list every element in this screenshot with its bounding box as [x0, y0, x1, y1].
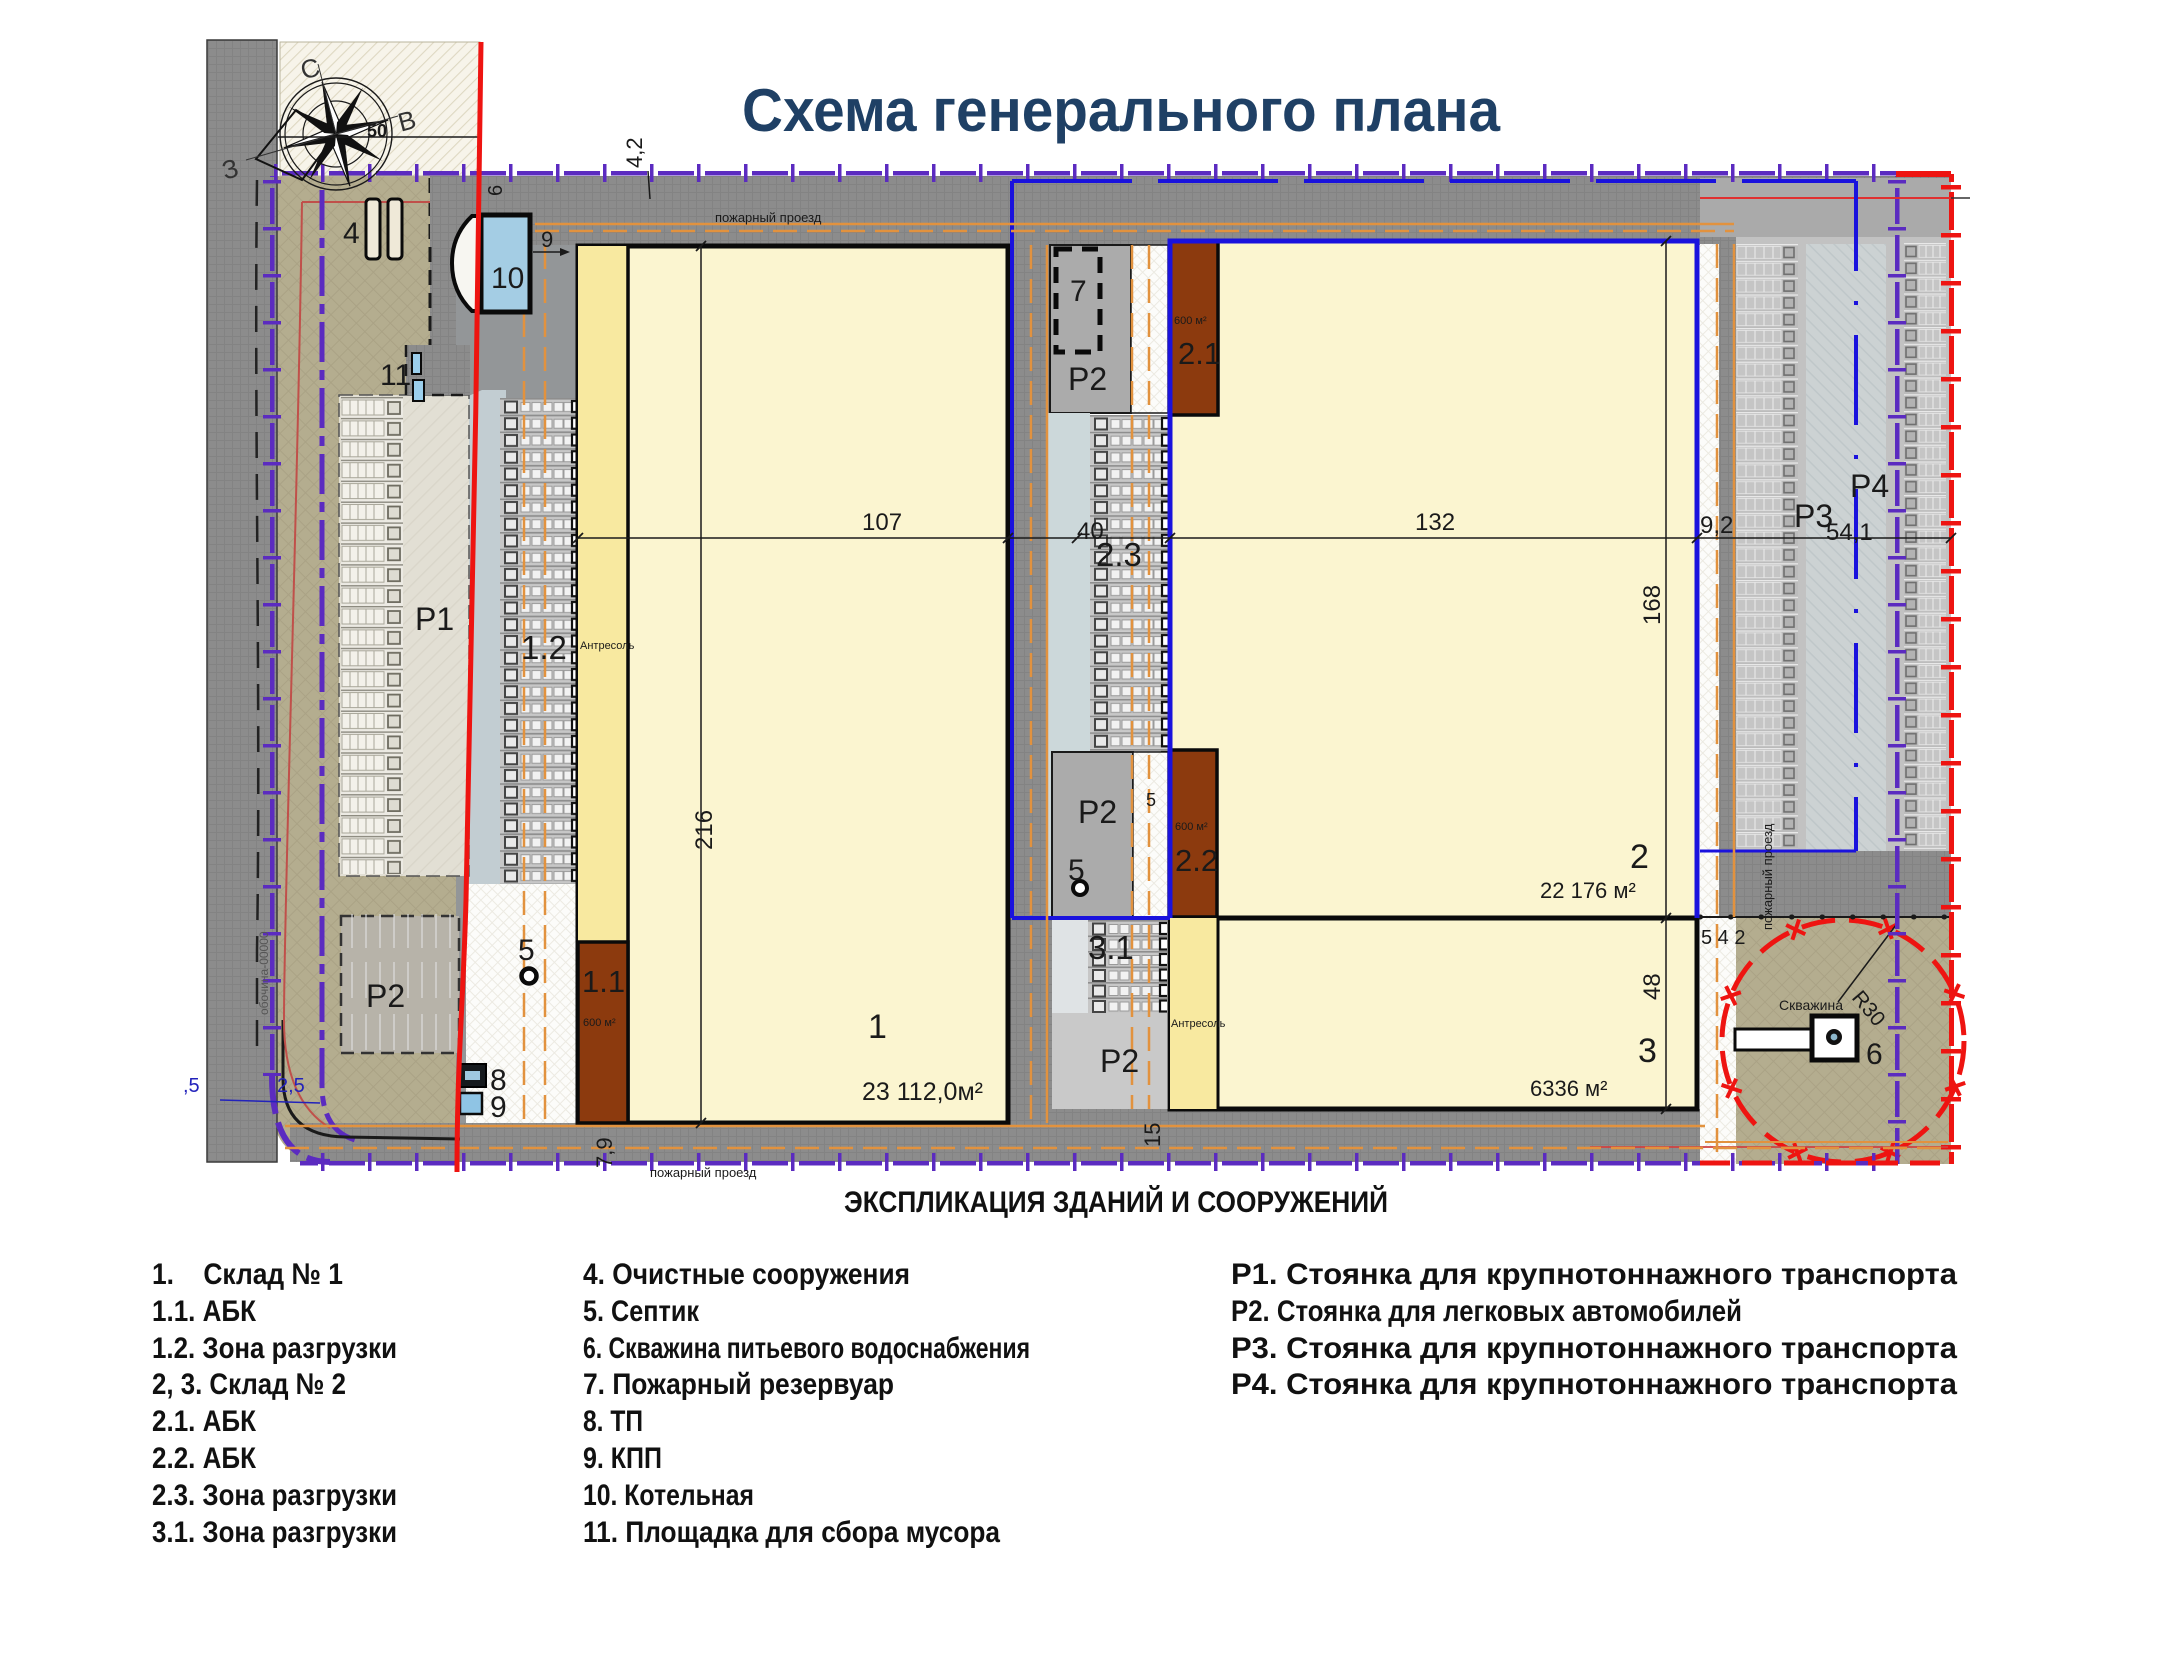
svg-text:Р2. Стоянка для легковых автом: Р2. Стоянка для легковых автомобилей: [1231, 1295, 1742, 1328]
svg-text:P2: P2: [1100, 1043, 1139, 1079]
svg-text:107: 107: [862, 509, 902, 536]
svg-text:обочина-00000: обочина-00000: [257, 931, 271, 1015]
svg-text:ЭКСПЛИКАЦИЯ ЗДАНИЙ И СООРУЖЕНИ: ЭКСПЛИКАЦИЯ ЗДАНИЙ И СООРУЖЕНИЙ: [844, 1185, 1388, 1219]
svg-text:23 112,0м²: 23 112,0м²: [862, 1078, 983, 1106]
svg-text:132: 132: [1415, 509, 1455, 536]
svg-text:6: 6: [485, 185, 507, 196]
svg-text:P1: P1: [415, 601, 454, 637]
svg-text:10: 10: [491, 262, 524, 295]
svg-text:Р1. Стоянка для крупнотоннажно: Р1. Стоянка для крупнотоннажного транспо…: [1231, 1258, 1957, 1291]
svg-text:пожарный проезд: пожарный проезд: [1760, 823, 1775, 930]
svg-text:7,9: 7,9: [592, 1137, 617, 1168]
svg-text:2.2. АБК: 2.2. АБК: [152, 1442, 257, 1475]
svg-text:Скважина: Скважина: [1779, 997, 1843, 1013]
svg-text:1.1: 1.1: [582, 964, 625, 999]
svg-text:2: 2: [1630, 838, 1649, 876]
svg-text:Антресоль: Антресоль: [1171, 1018, 1226, 1030]
svg-text:1: 1: [868, 1008, 887, 1046]
svg-text:2.1: 2.1: [1178, 336, 1221, 371]
svg-text:Р4. Стоянка для крупнотоннажно: Р4. Стоянка для крупнотоннажного транспо…: [1231, 1368, 1957, 1401]
svg-text:22 176 м²: 22 176 м²: [1540, 878, 1636, 903]
svg-text:600 м²: 600 м²: [1174, 315, 1207, 327]
svg-text:6. Скважина питьевого водоснаб: 6. Скважина питьевого водоснабжения: [583, 1332, 1030, 1365]
svg-text:2.2: 2.2: [1175, 843, 1218, 878]
svg-text:7: 7: [1070, 275, 1087, 308]
svg-text:1. Склад № 1: 1. Склад № 1: [152, 1258, 343, 1291]
svg-text:4: 4: [343, 217, 360, 250]
svg-text:48: 48: [1639, 973, 1666, 1000]
svg-text:600 м²: 600 м²: [583, 1017, 616, 1029]
svg-text:2.3. Зона разгрузки: 2.3. Зона разгрузки: [152, 1479, 397, 1512]
svg-text:2,5: 2,5: [277, 1075, 305, 1097]
svg-text:Р3. Стоянка для крупнотоннажно: Р3. Стоянка для крупнотоннажного транспо…: [1231, 1332, 1957, 1365]
svg-text:1.2. Зона разгрузки: 1.2. Зона разгрузки: [152, 1332, 397, 1365]
svg-text:50: 50: [367, 121, 387, 141]
svg-text:P3: P3: [1794, 498, 1833, 534]
svg-text:2.1. АБК: 2.1. АБК: [152, 1405, 257, 1438]
svg-text:4,2: 4,2: [622, 137, 647, 168]
svg-text:11. Площадка для сбора мусора: 11. Площадка для сбора мусора: [583, 1516, 1000, 1549]
svg-text:P4: P4: [1850, 468, 1889, 504]
svg-text:P2: P2: [1068, 361, 1107, 397]
svg-text:9,2: 9,2: [1700, 512, 1733, 539]
svg-text:1.1. АБК: 1.1. АБК: [152, 1295, 257, 1328]
svg-text:11: 11: [380, 359, 411, 392]
svg-text:2, 3. Склад № 2: 2, 3. Склад № 2: [152, 1368, 346, 1401]
svg-text:5: 5: [1146, 790, 1156, 810]
svg-text:5 4 2: 5 4 2: [1701, 927, 1745, 949]
svg-text:216: 216: [691, 810, 718, 850]
svg-text:3.1. Зона разгрузки: 3.1. Зона разгрузки: [152, 1516, 397, 1549]
svg-text:P2: P2: [366, 978, 405, 1014]
svg-text:Антресоль: Антресоль: [580, 640, 635, 652]
svg-text:168: 168: [1639, 585, 1666, 625]
svg-text:5: 5: [1068, 854, 1085, 887]
svg-text:5: 5: [518, 934, 535, 967]
svg-text:7. Пожарный резервуар: 7. Пожарный резервуар: [583, 1368, 894, 1401]
svg-text:пожарный проезд: пожарный проезд: [715, 210, 822, 225]
svg-text:15: 15: [1140, 1123, 1165, 1147]
svg-text:600 м²: 600 м²: [1175, 821, 1208, 833]
svg-text:8. ТП: 8. ТП: [583, 1405, 643, 1438]
svg-text:пожарный проезд: пожарный проезд: [650, 1165, 757, 1180]
svg-text:6: 6: [1866, 1038, 1883, 1071]
svg-text:4. Очистные сооружения: 4. Очистные сооружения: [583, 1258, 910, 1291]
svg-text:3: 3: [1638, 1032, 1657, 1070]
svg-text:2.3: 2.3: [1096, 536, 1142, 573]
svg-text:9. КПП: 9. КПП: [583, 1442, 662, 1475]
svg-text:10. Котельная: 10. Котельная: [583, 1479, 754, 1512]
svg-text:P2: P2: [1078, 794, 1117, 830]
svg-text:Схема генерального плана: Схема генерального плана: [742, 77, 1501, 144]
svg-text:1.2: 1.2: [521, 629, 567, 666]
svg-text:6336 м²: 6336 м²: [1530, 1076, 1608, 1101]
svg-text:3.1: 3.1: [1088, 929, 1134, 966]
svg-text:9: 9: [490, 1091, 507, 1124]
svg-text:9: 9: [541, 227, 553, 252]
svg-text:,5: ,5: [183, 1075, 200, 1097]
svg-text:5. Септик: 5. Септик: [583, 1295, 700, 1328]
